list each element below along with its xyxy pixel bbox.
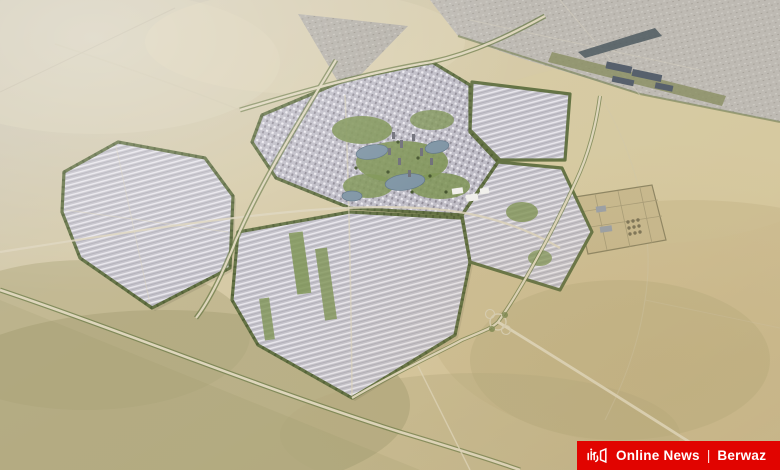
berwaz-logo-icon (585, 447, 609, 465)
aerial-city-render: Online News | Berwaz (0, 0, 780, 470)
watermark-bar: Online News | Berwaz (577, 441, 780, 470)
aerial-scene (0, 0, 780, 470)
watermark-news-label: Online News (616, 448, 700, 463)
atmosphere (0, 0, 780, 470)
watermark-brand-label: Berwaz (717, 448, 766, 463)
watermark-divider: | (707, 447, 711, 463)
